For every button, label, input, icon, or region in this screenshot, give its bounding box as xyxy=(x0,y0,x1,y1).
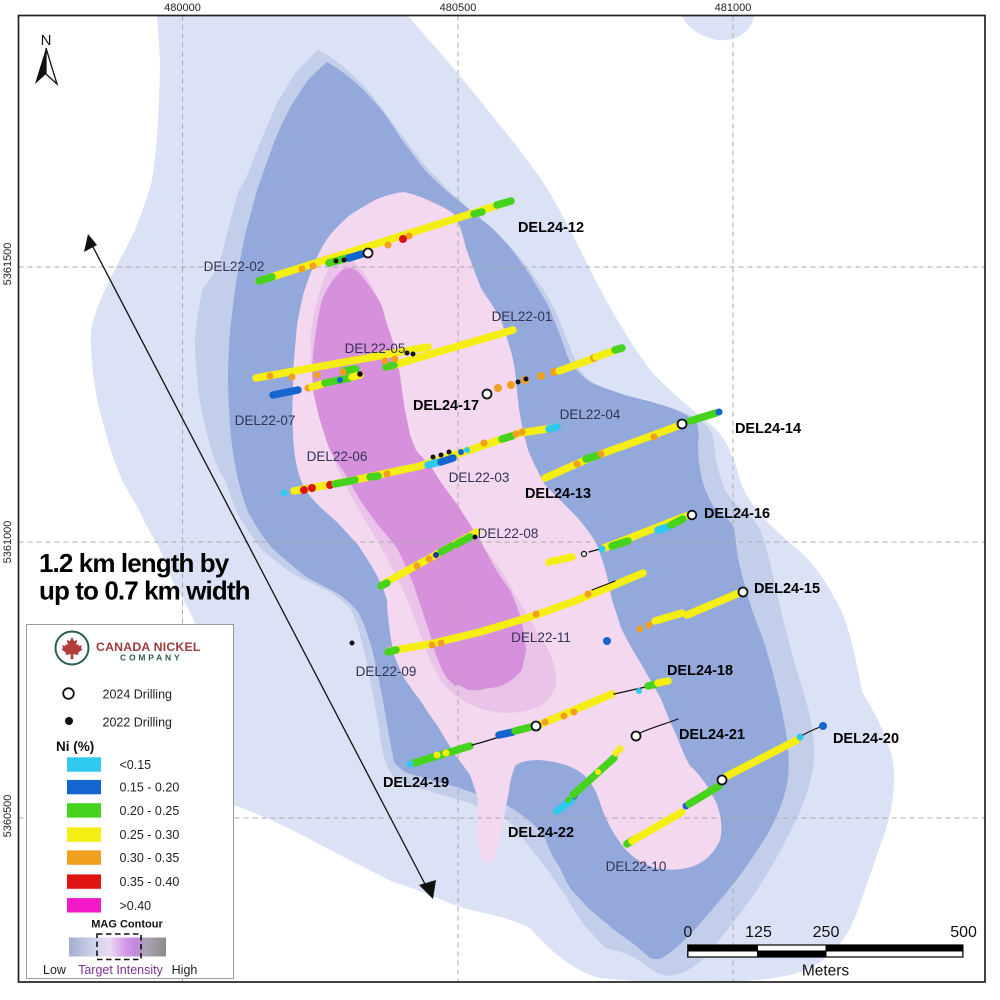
svg-text:5360500: 5360500 xyxy=(2,795,14,838)
svg-text:480500: 480500 xyxy=(440,2,477,14)
svg-text:DEL22-11: DEL22-11 xyxy=(511,630,571,645)
svg-text:DEL24-15: DEL24-15 xyxy=(754,581,820,597)
svg-text:DEL22-09: DEL22-09 xyxy=(356,664,417,679)
svg-text:DEL24-12: DEL24-12 xyxy=(518,220,584,236)
svg-text:0.25 - 0.30: 0.25 - 0.30 xyxy=(120,828,180,842)
svg-text:DEL22-08: DEL22-08 xyxy=(478,526,539,541)
svg-text:500: 500 xyxy=(950,924,977,941)
svg-text:DEL24-18: DEL24-18 xyxy=(667,663,733,679)
svg-text:DEL22-02: DEL22-02 xyxy=(204,259,265,274)
svg-text:DEL22-01: DEL22-01 xyxy=(492,309,553,324)
svg-text:480000: 480000 xyxy=(164,2,201,14)
svg-text:0.15 - 0.20: 0.15 - 0.20 xyxy=(120,781,180,795)
svg-text:1.2 km length by: 1.2 km length by xyxy=(39,548,230,578)
svg-text:481000: 481000 xyxy=(715,2,752,14)
svg-text:0.20 - 0.25: 0.20 - 0.25 xyxy=(120,804,180,818)
svg-text:DEL24-22: DEL24-22 xyxy=(508,825,574,841)
svg-text:DEL22-05: DEL22-05 xyxy=(345,341,406,356)
svg-text:<0.15: <0.15 xyxy=(120,758,152,772)
svg-text:0.30 - 0.35: 0.30 - 0.35 xyxy=(120,851,180,865)
svg-text:DEL24-17: DEL24-17 xyxy=(413,398,479,414)
svg-text:DEL24-21: DEL24-21 xyxy=(679,727,745,743)
svg-text:N: N xyxy=(41,32,52,49)
svg-text:DEL22-04: DEL22-04 xyxy=(560,407,621,422)
svg-text:DEL24-16: DEL24-16 xyxy=(704,506,770,522)
svg-text:2022 Drilling: 2022 Drilling xyxy=(103,716,173,730)
svg-text:Low: Low xyxy=(43,963,67,977)
svg-text:MAG Contour: MAG Contour xyxy=(91,919,163,931)
svg-text:DEL22-03: DEL22-03 xyxy=(449,470,510,485)
svg-text:High: High xyxy=(172,963,198,977)
svg-text:DEL24-20: DEL24-20 xyxy=(833,731,899,747)
svg-text:Target Intensity: Target Intensity xyxy=(78,963,164,977)
svg-text:up to 0.7 km width: up to 0.7 km width xyxy=(39,576,250,606)
svg-text:DEL22-10: DEL22-10 xyxy=(606,859,667,874)
svg-text:0.35 - 0.40: 0.35 - 0.40 xyxy=(120,875,180,889)
svg-text:5361500: 5361500 xyxy=(2,243,14,286)
svg-text:DEL24-19: DEL24-19 xyxy=(383,775,449,791)
svg-text:2024 Drilling: 2024 Drilling xyxy=(103,688,173,702)
svg-text:DEL22-07: DEL22-07 xyxy=(235,413,296,428)
svg-text:5361000: 5361000 xyxy=(2,521,14,564)
svg-text:0: 0 xyxy=(683,924,692,941)
svg-text:Meters: Meters xyxy=(802,963,850,980)
svg-text:>0.40: >0.40 xyxy=(120,899,152,913)
svg-text:COMPANY: COMPANY xyxy=(120,653,182,663)
svg-text:250: 250 xyxy=(813,924,840,941)
svg-text:DEL22-06: DEL22-06 xyxy=(307,449,368,464)
svg-text:DEL24-13: DEL24-13 xyxy=(525,486,591,502)
svg-text:125: 125 xyxy=(745,924,772,941)
svg-text:DEL24-14: DEL24-14 xyxy=(735,421,801,437)
svg-text:Ni (%): Ni (%) xyxy=(56,739,94,754)
